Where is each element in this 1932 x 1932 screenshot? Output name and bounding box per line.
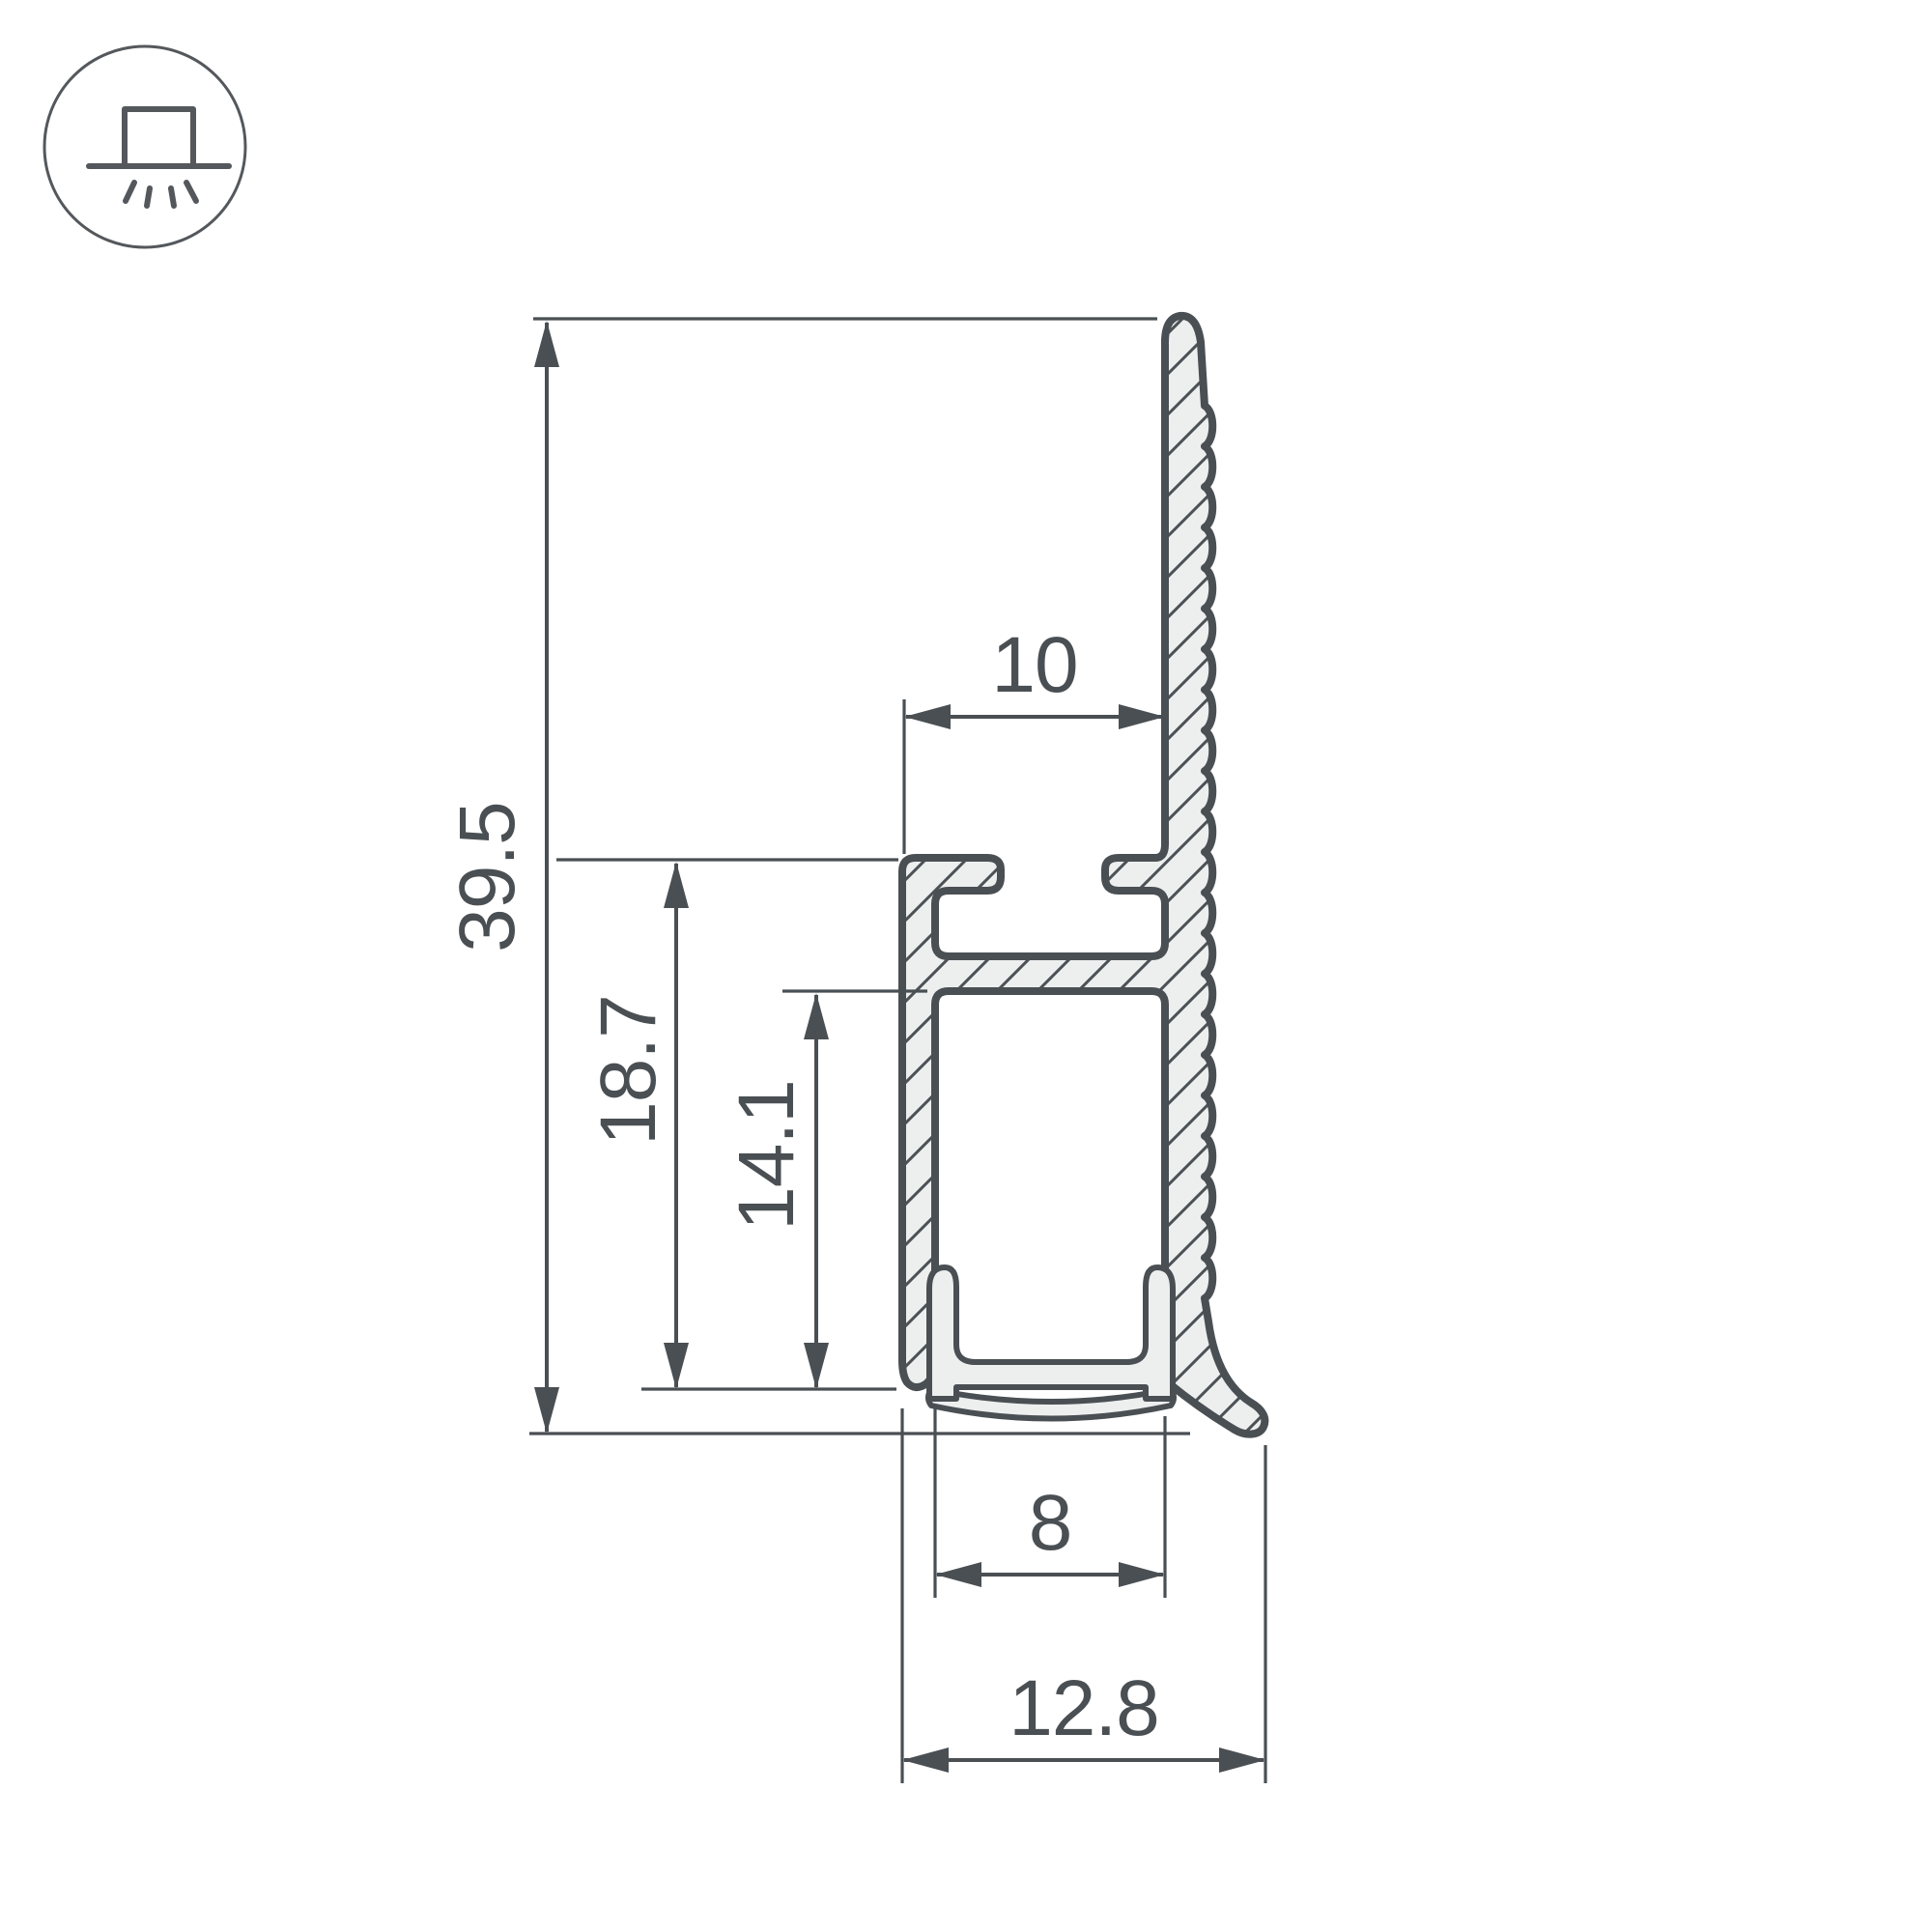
arrowhead-up	[534, 321, 559, 367]
arrowhead-left	[904, 704, 951, 729]
profile-aluminum-body	[902, 316, 1264, 1435]
dimension-total-height-label: 39.5	[443, 802, 531, 952]
light-ray	[171, 188, 174, 206]
dimension-groove-width: 10	[904, 621, 1165, 729]
arrowhead-left	[902, 1747, 949, 1773]
dimension-total-height: 39.5	[443, 321, 559, 1434]
dimension-inner-height-label: 14.1	[723, 1080, 810, 1231]
profile-cross-section	[902, 316, 1264, 1435]
arrowhead-up	[664, 862, 689, 908]
dimension-total-width: 12.8	[902, 1664, 1265, 1773]
technical-drawing-page: 39.5 18.7 14.1 10 8 12.8	[0, 0, 1932, 1932]
diffuser-lens	[928, 1389, 1174, 1419]
dimension-body-height-label: 18.7	[584, 995, 672, 1146]
dimension-channel-width-label: 8	[1029, 1479, 1072, 1567]
arrowhead-down	[534, 1387, 559, 1434]
arrowhead-up	[804, 993, 829, 1039]
dimension-groove-width-label: 10	[991, 621, 1077, 709]
dimension-body-height: 18.7	[584, 862, 689, 1389]
arrowhead-left	[935, 1562, 981, 1587]
arrowhead-down	[804, 1343, 829, 1389]
profile-dimension-drawing: 39.5 18.7 14.1 10 8 12.8	[0, 0, 1932, 1932]
dimension-channel-width: 8	[935, 1479, 1165, 1587]
arrowhead-right	[1119, 704, 1165, 729]
light-ray	[147, 188, 150, 206]
icon-circle-border	[44, 46, 245, 247]
surface-mount-light-icon	[44, 46, 245, 247]
led-clip-channel	[929, 1267, 1173, 1399]
arrowhead-right	[1219, 1747, 1265, 1773]
dimension-total-width-label: 12.8	[1009, 1664, 1159, 1752]
arrowhead-down	[664, 1343, 689, 1389]
dimension-inner-height: 14.1	[723, 993, 829, 1389]
arrowhead-right	[1119, 1562, 1165, 1587]
